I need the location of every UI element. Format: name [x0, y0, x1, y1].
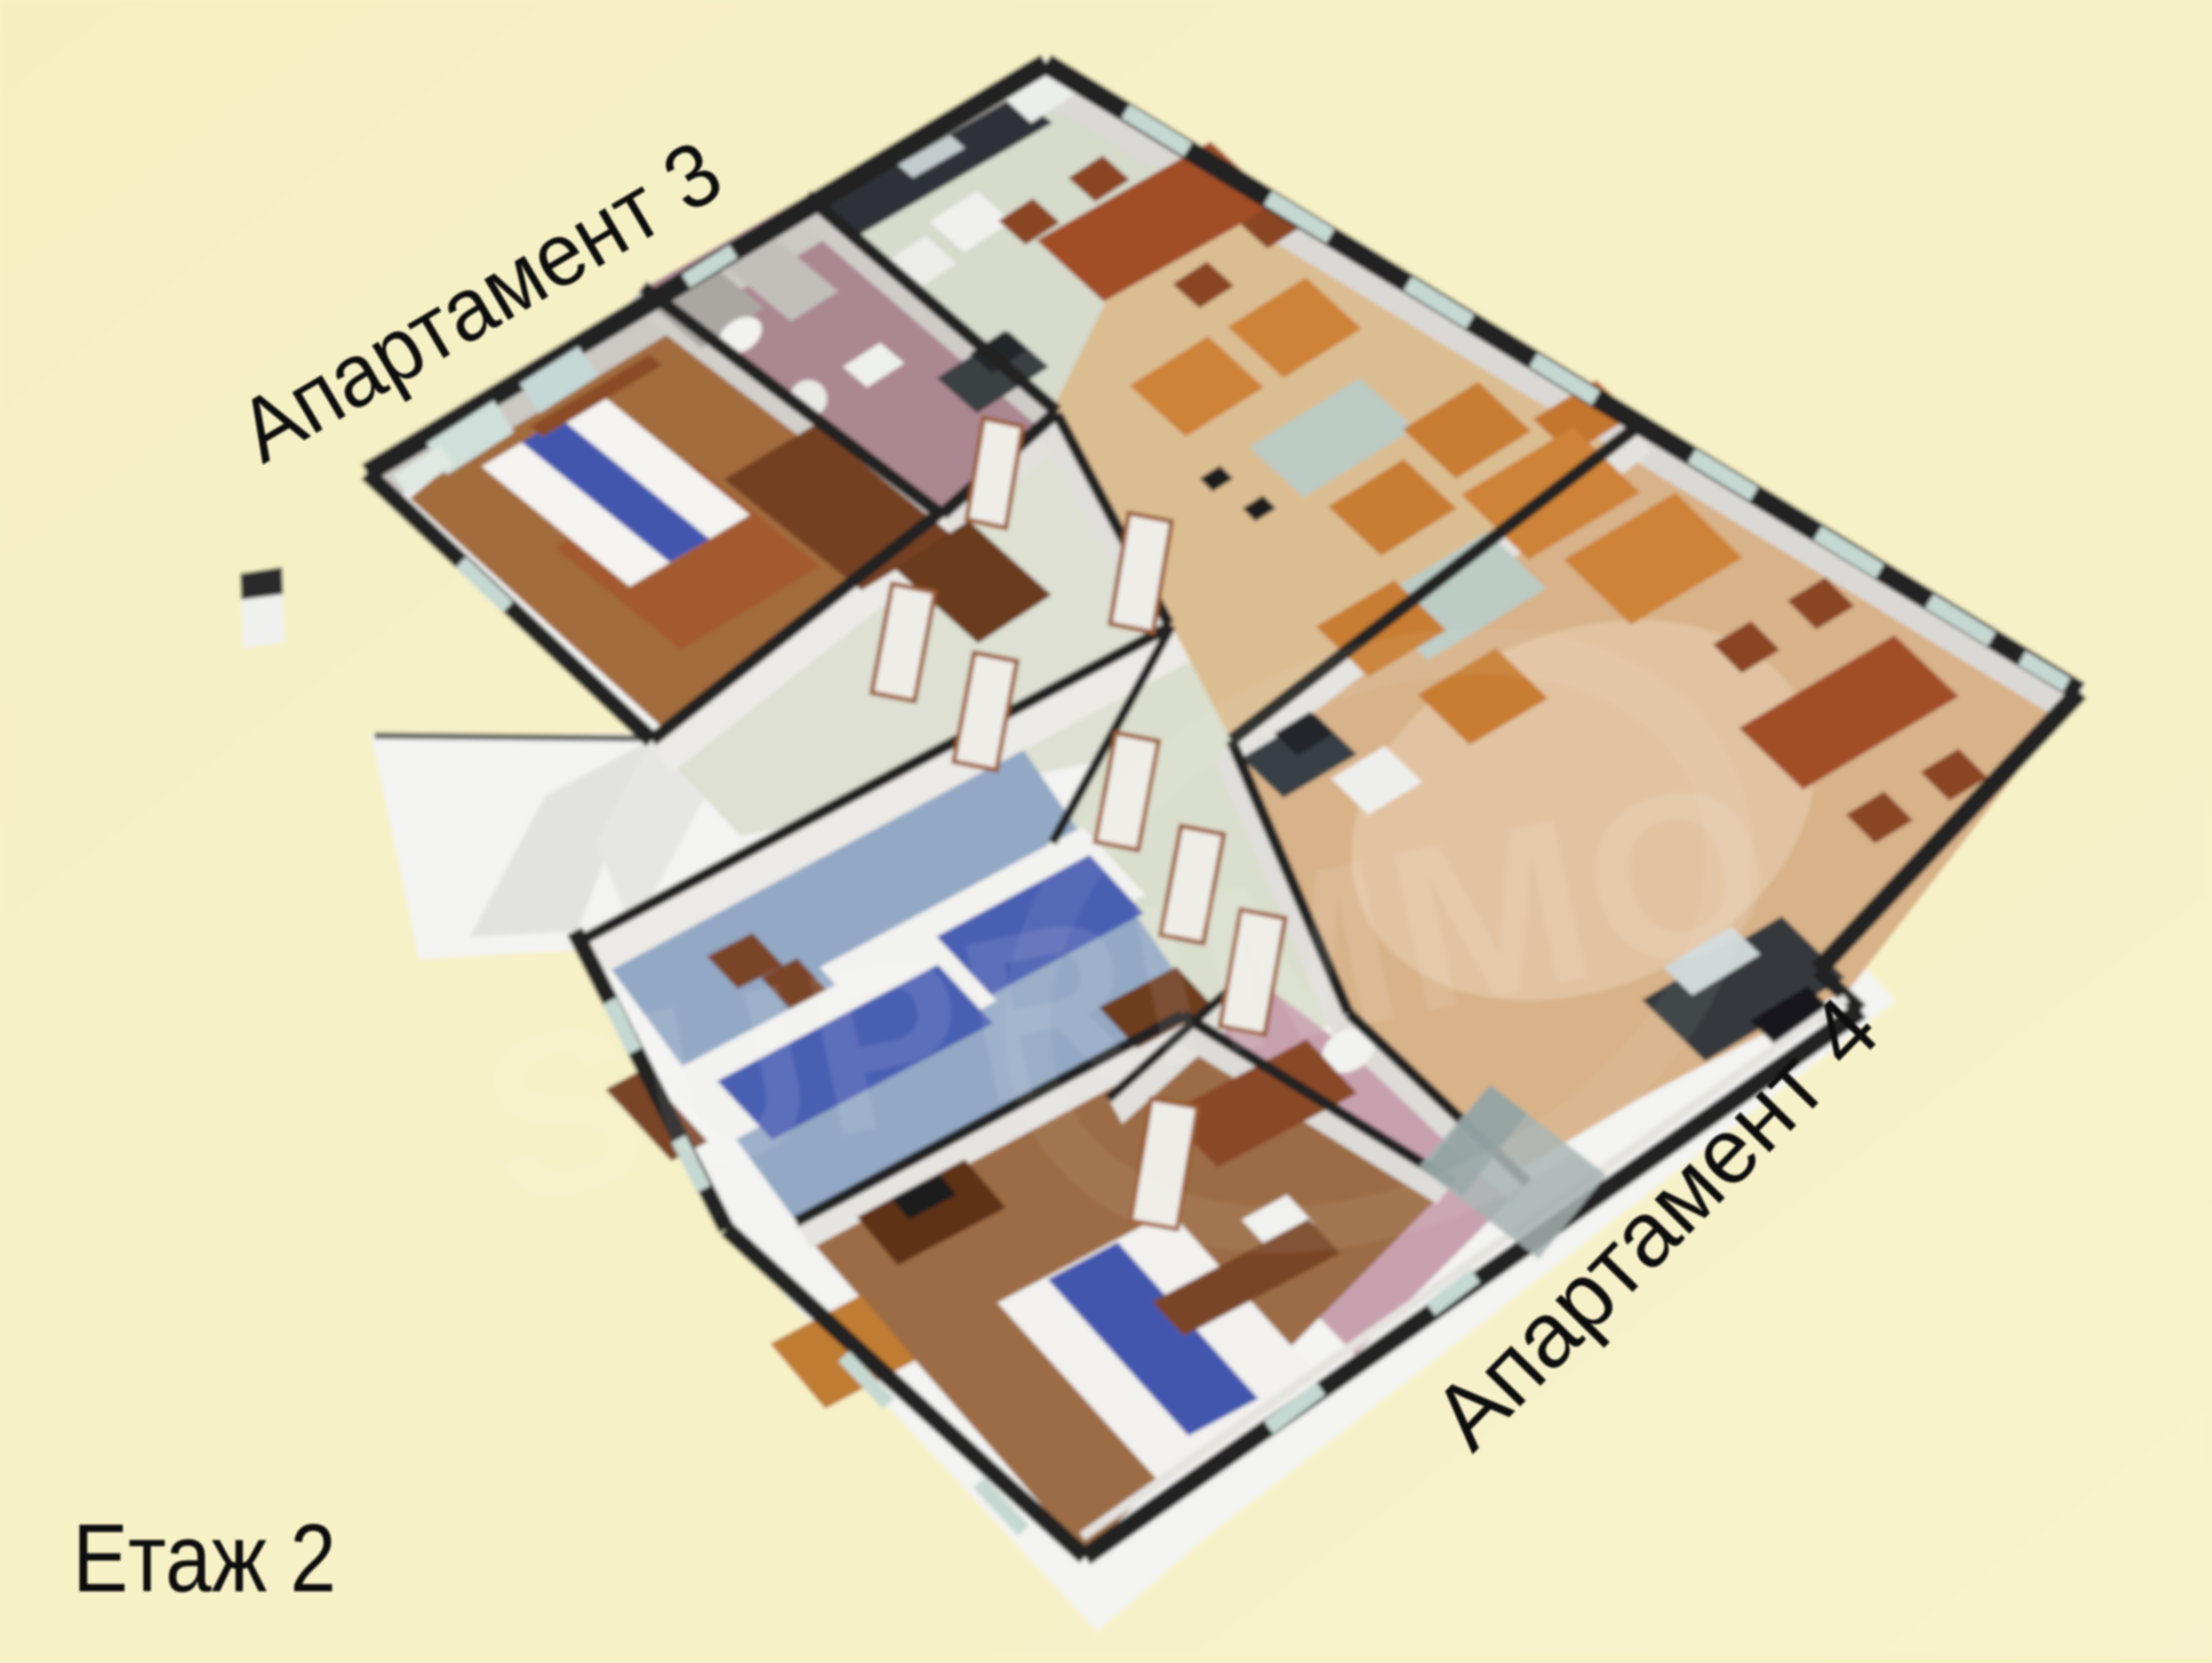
svg-text:Етаж 2: Етаж 2 [73, 1505, 336, 1613]
